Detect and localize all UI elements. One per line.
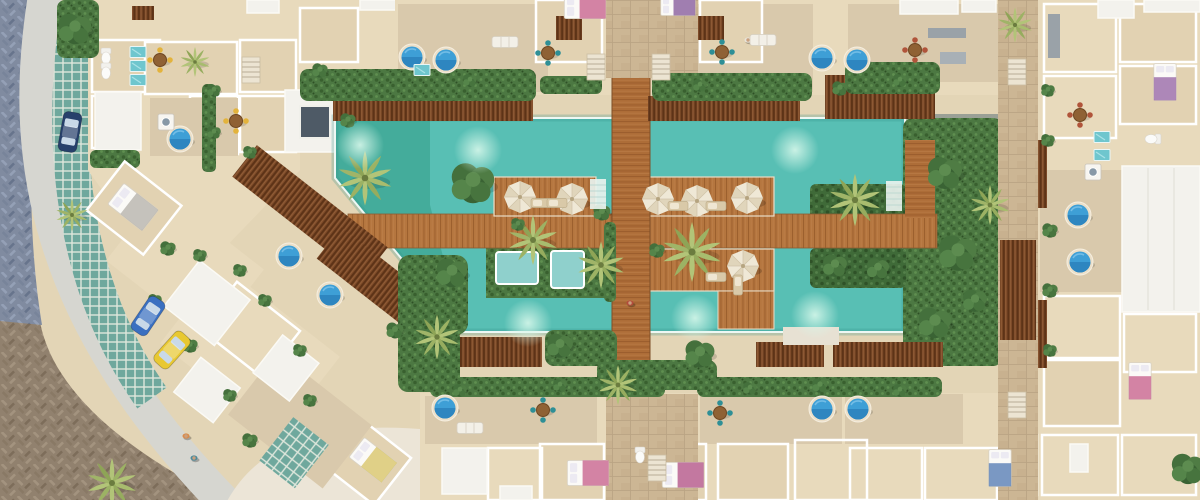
washer-sprite xyxy=(1085,164,1101,180)
bed-sprite xyxy=(564,0,605,19)
white-roof xyxy=(900,0,958,14)
stairs-sprite xyxy=(648,455,666,481)
bed-sprite xyxy=(567,460,608,485)
tealpanel-sprite xyxy=(1094,132,1110,143)
wood-balcony xyxy=(556,16,582,40)
tealpanel-sprite xyxy=(130,75,146,86)
wood-balcony xyxy=(132,6,154,20)
right-units-column xyxy=(1033,140,1200,430)
scene-canvas xyxy=(0,0,1200,500)
tree-sprite xyxy=(1172,454,1200,484)
bed-sprite xyxy=(1129,363,1151,400)
inner-plunge-pool xyxy=(551,251,584,288)
kitchen-counter xyxy=(928,28,966,38)
pergola xyxy=(756,342,824,367)
sofa-sprite xyxy=(750,35,776,46)
wood-corridor xyxy=(1000,240,1036,340)
roof-skylight xyxy=(300,106,330,138)
sofa-sprite xyxy=(492,37,518,48)
stairs-sprite xyxy=(1008,59,1026,85)
lounger-sprite xyxy=(668,202,688,211)
hedge-strip xyxy=(90,150,140,168)
white-roof xyxy=(247,0,279,13)
boardwalk-bridge xyxy=(612,74,650,396)
bed-sprite xyxy=(662,462,703,487)
glow-sprite xyxy=(771,126,819,174)
stairs-sprite xyxy=(587,54,605,80)
lounger-sprite xyxy=(706,202,726,211)
kitchen-island xyxy=(940,52,966,64)
lounger-sprite xyxy=(734,275,743,295)
toilet-sprite xyxy=(1145,134,1161,144)
room-outline xyxy=(300,8,358,62)
stairs-sprite xyxy=(652,54,670,80)
white-roof xyxy=(1098,0,1134,18)
bed-sprite xyxy=(661,0,696,16)
white-roof xyxy=(962,0,996,12)
glow-sprite xyxy=(336,121,384,169)
toilet-sprite xyxy=(101,48,111,64)
glow-sprite xyxy=(454,126,502,174)
tealpanel-sprite xyxy=(130,47,146,58)
glow-sprite xyxy=(504,299,552,347)
bed-sprite xyxy=(989,450,1011,487)
steps-sprite xyxy=(886,181,902,211)
deck-extension xyxy=(718,291,774,329)
glow-sprite xyxy=(791,291,839,339)
kitchen-counter xyxy=(1048,14,1060,58)
tealpanel-sprite xyxy=(130,61,146,72)
steps-sprite xyxy=(590,179,606,209)
white-roof xyxy=(1144,0,1200,12)
white-roof xyxy=(442,448,487,494)
toilet-sprite xyxy=(635,447,645,463)
stairs-sprite xyxy=(1008,392,1026,418)
tealpanel-sprite xyxy=(1094,150,1110,161)
lounger-sprite xyxy=(547,199,567,208)
white-roof xyxy=(1070,444,1088,472)
white-roof xyxy=(95,92,141,150)
sofa-sprite xyxy=(457,423,483,434)
wood-balcony xyxy=(698,16,724,40)
bedroom-outline xyxy=(1044,360,1120,426)
stairs-sprite xyxy=(242,57,260,83)
hedge-top xyxy=(652,73,812,101)
washer-sprite xyxy=(158,114,174,130)
glow-sprite xyxy=(671,294,719,342)
lounger-sprite xyxy=(706,273,726,282)
bedroom-outline xyxy=(718,444,788,500)
bottom-units-row xyxy=(420,393,1000,500)
toilet-sprite xyxy=(101,63,111,79)
bed-sprite xyxy=(1154,64,1176,101)
white-roof-large xyxy=(1122,166,1200,312)
tealpanel-sprite xyxy=(414,65,430,76)
white-roof xyxy=(500,486,532,500)
pergola xyxy=(833,342,943,367)
resort-aerial-render xyxy=(0,0,1200,500)
